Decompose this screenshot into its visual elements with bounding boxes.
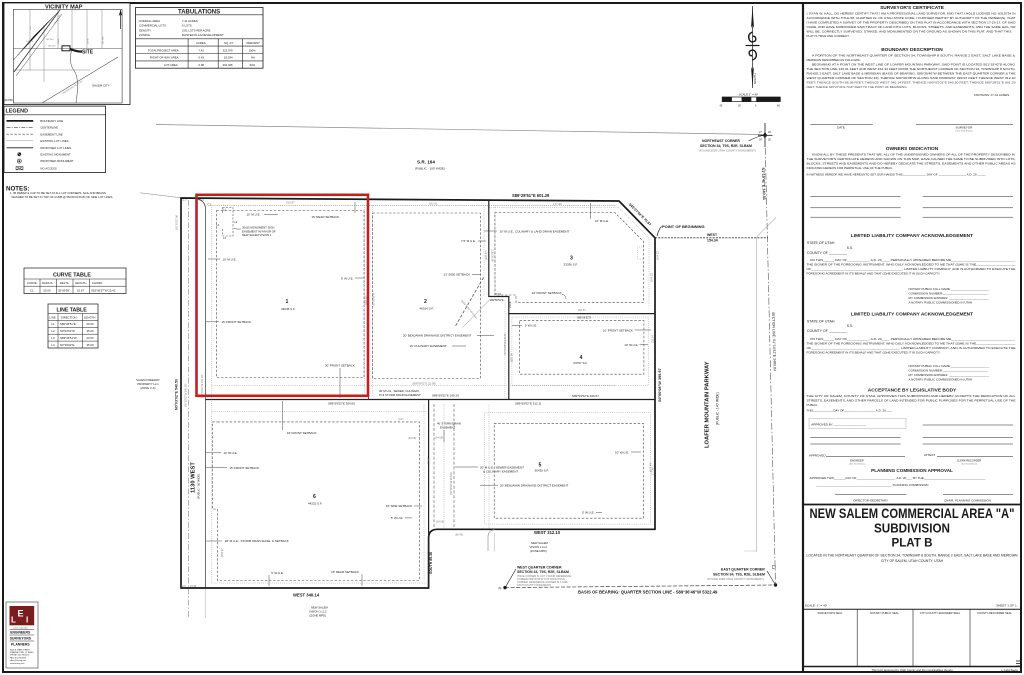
svg-text:(ZONE MPD): (ZONE MPD) <box>530 549 547 553</box>
svg-text:27.42: 27.42 <box>428 457 431 464</box>
svg-text:WEST: WEST <box>707 233 718 237</box>
svg-text:NEW SALEM COMMERCIAL AREA "A": NEW SALEM COMMERCIAL AREA "A" <box>810 506 1015 521</box>
svg-text:LINE TABLE: LINE TABLE <box>57 307 88 313</box>
svg-text:LIMITED LIABILITY COMPANY ACKN: LIMITED LIABILITY COMPANY ACKNOWLEDGEMEN… <box>851 312 973 318</box>
svg-text:FOREGOING AGREEMENT IN ITS BEH: FOREGOING AGREEMENT IN ITS BEHALF AND TH… <box>807 272 941 276</box>
svg-text:PI & STORM DRAIN EASEMENT: PI & STORM DRAIN EASEMENT <box>379 393 421 397</box>
svg-text:L: L <box>11 616 16 625</box>
svg-text:(S0°00'08"W 113.81): (S0°00'08"W 113.81) <box>450 472 453 495</box>
svg-text:PLAT B: PLAT B <box>892 535 933 549</box>
svg-text:SURVEYOR: SURVEYOR <box>956 125 974 129</box>
svg-text:EASEMENT: EASEMENT <box>440 426 456 430</box>
svg-text:15' FRONT SETBACK: 15' FRONT SETBACK <box>221 320 251 324</box>
svg-text:ACRES: ACRES <box>196 41 206 45</box>
svg-text:S.R. 164: S.R. 164 <box>417 160 435 165</box>
svg-text:S0°00'08"W: S0°00'08"W <box>373 292 376 306</box>
svg-text:(ZONE MPD): (ZONE MPD) <box>310 614 327 618</box>
svg-text:15' SIDE SETBACK: 15' SIDE SETBACK <box>386 504 413 508</box>
svg-text:(158.97): (158.97) <box>221 548 224 557</box>
svg-text:10' FRONT SETBACK: 10' FRONT SETBACK <box>532 291 562 295</box>
svg-text:office@lei-eng.com: office@lei-eng.com <box>10 660 27 662</box>
svg-text:LIMITED LIABILITY COMPANY ACKN: LIMITED LIABILITY COMPANY ACKNOWLEDGEMEN… <box>851 233 973 239</box>
svg-text:WEST 312.10: WEST 312.10 <box>534 530 561 535</box>
svg-text:L2: L2 <box>52 329 56 333</box>
svg-text:ACCORDANCE WITH TITLE 58, CHAP: ACCORDANCE WITH TITLE 58, CHAPTER 22, OF… <box>807 16 1016 20</box>
svg-text:BOUNDARY LINE: BOUNDARY LINE <box>40 119 63 123</box>
svg-text:23.98: 23.98 <box>190 585 197 588</box>
svg-text:ENGINEERS: ENGINEERS <box>10 630 31 634</box>
svg-text:LOAFER MOUNTAIN PARKWAY: LOAFER MOUNTAIN PARKWAY <box>705 361 711 448</box>
svg-text:S0°03'02"W: S0°03'02"W <box>60 329 75 333</box>
svg-text:100%: 100% <box>249 48 257 52</box>
svg-text:10' FRONT SETBACK: 10' FRONT SETBACK <box>603 328 633 332</box>
svg-text:PUBLIC.: PUBLIC. <box>807 403 819 407</box>
svg-text:INDICATED HEREON FOR PERPETUAL: INDICATED HEREON FOR PERPETUAL USE OF TH… <box>807 166 894 170</box>
svg-text:A NOTARY PUBLIC COMMISSIONED I: A NOTARY PUBLIC COMMISSIONED IN UTAH <box>909 301 973 305</box>
svg-text:COMMISSION NUMBER:____________: COMMISSION NUMBER:______________________… <box>909 292 989 296</box>
svg-text:CHAIR, PLANNING COMMISSION: CHAIR, PLANNING COMMISSION <box>944 499 991 503</box>
svg-text:S89°59'52"E 304.00: S89°59'52"E 304.00 <box>328 402 355 406</box>
svg-text:EXISTING MONUMENT: EXISTING MONUMENT <box>40 152 71 156</box>
svg-text:C1: C1 <box>208 203 212 207</box>
svg-text:SITE: SITE <box>82 50 94 56</box>
svg-text:CHORD: CHORD <box>92 281 102 285</box>
svg-text:BLOCKS, STREETS AND EASEMENTS: BLOCKS, STREETS AND EASEMENTS AND DO HER… <box>807 162 1016 166</box>
svg-text:N0°00'08"E: N0°00'08"E <box>492 249 495 262</box>
svg-text:26' M.U.E., STORM DRAIN EASE.: 26' M.U.E., STORM DRAIN EASE. & SETBACK <box>225 539 289 543</box>
svg-text:SCALE: 1" = 40': SCALE: 1" = 40' <box>805 604 828 608</box>
svg-text:PROPOSED MONUMENT: PROPOSED MONUMENT <box>40 159 73 163</box>
svg-text:______________________________: ________________________________________… <box>815 483 929 487</box>
svg-text:NOTARY PUBLIC FULL NAME:______: NOTARY PUBLIC FULL NAME:________________… <box>909 364 990 368</box>
svg-text:COUNTY-RECORDER SEAL: COUNTY-RECORDER SEAL <box>977 611 1012 615</box>
svg-text:S.S.: S.S. <box>847 246 853 250</box>
svg-text:15' FRONT SETBACK: 15' FRONT SETBACK <box>229 466 259 470</box>
svg-text:DIRECTION: DIRECTION <box>61 315 76 319</box>
svg-text:12.5': 12.5' <box>182 199 188 202</box>
svg-text:264.67: 264.67 <box>578 309 586 312</box>
svg-text:10' M.U.E.: 10' M.U.E. <box>223 257 237 261</box>
svg-text:EAST QUARTER CORNER: EAST QUARTER CORNER <box>721 568 765 572</box>
svg-text:10' M.U.E.: 10' M.U.E. <box>595 219 609 223</box>
svg-text:(25'): (25') <box>199 199 204 202</box>
svg-text:(PUBLIC - 140' WIDE): (PUBLIC - 140' WIDE) <box>716 392 720 425</box>
svg-text:BEGINNING AT A POINT ON THE WE: BEGINNING AT A POINT ON THE WEST LINE OF… <box>812 63 1016 67</box>
svg-text:LEGEND: LEGEND <box>6 109 29 115</box>
svg-text:NORTH: NORTH <box>753 73 757 84</box>
svg-text:MERIDIAN DESCRIBED AS FOLLOWS:: MERIDIAN DESCRIBED AS FOLLOWS: <box>807 58 861 62</box>
svg-text:0.81 LOTS PER ACRE: 0.81 LOTS PER ACRE <box>182 28 211 32</box>
svg-text:I, RYAN W. HALL, DO HEREBY CER: I, RYAN W. HALL, DO HEREBY CERTIFY THAT … <box>807 12 1016 16</box>
svg-text:This form approved by Utah Cou: This form approved by Utah County and th… <box>871 668 953 672</box>
svg-text:L/ 1410-76x01: L/ 1410-76x01 <box>1001 669 1018 673</box>
svg-text:EASEMENT LINE: EASEMENT LINE <box>40 132 62 136</box>
svg-text:SECTION 34, T9S, R2E, SLB&M: SECTION 34, T9S, R2E, SLB&M <box>700 144 752 148</box>
svg-text:7.5' M.U.E.: 7.5' M.U.E. <box>461 239 476 243</box>
svg-text:STATE OF UTAH: STATE OF UTAH <box>807 241 835 245</box>
svg-text:(26.28): (26.28) <box>408 437 416 440</box>
svg-text:(S0°03'02"W 540.50): (S0°03'02"W 540.50) <box>185 383 188 407</box>
svg-text:S89°59'52"E 169.29: S89°59'52"E 169.29 <box>432 393 459 397</box>
svg-text:SURVEYOR'S CERTIFICATE: SURVEYOR'S CERTIFICATE <box>880 5 945 11</box>
svg-text:1130 WEST: 1130 WEST <box>191 462 197 493</box>
svg-text:WASHER TO BE SET IN TOP OF CUR: WASHER TO BE SET IN TOP OF CURB @ PRODUC… <box>12 195 114 199</box>
svg-text:CITY OF SALEM, UTAH COUNTY, UT: CITY OF SALEM, UTAH COUNTY, UTAH <box>881 559 944 563</box>
svg-text:23797 S.F.: 23797 S.F. <box>573 361 588 365</box>
svg-text:THE CITY OF SALEM, COUNTY OF: THE CITY OF SALEM, COUNTY OF UTAH, APPRO… <box>807 394 1016 398</box>
svg-text:15' REAR SETBACK: 15' REAR SETBACK <box>331 570 359 574</box>
svg-text:20' BENJAMIN DRAINAGE DISTRICT: 20' BENJAMIN DRAINAGE DISTRICT EASEMENT <box>500 484 569 488</box>
svg-text:NOTARY PUBLIC FULL NAME:______: NOTARY PUBLIC FULL NAME:________________… <box>909 287 990 291</box>
svg-text:WEST QUARTER CORNER OF SECTION: WEST QUARTER CORNER OF SECTION 34); THEN… <box>807 76 1016 80</box>
svg-text:S0°00'08"W 399.97: S0°00'08"W 399.97 <box>658 368 662 402</box>
svg-text:THE SIGNER OF THE FOREGOING IN: THE SIGNER OF THE FOREGOING INSTRUMENT, … <box>807 342 1016 346</box>
svg-text:NO ACCESS: NO ACCESS <box>40 166 56 170</box>
svg-text:THE SECTION LINE 140.01 FEET A: THE SECTION LINE 140.01 FEET AND WEST 15… <box>807 67 1016 71</box>
svg-text:43045 S.F.: 43045 S.F. <box>281 307 296 311</box>
svg-text:STATE OF UTAH: STATE OF UTAH <box>807 320 835 324</box>
svg-text:PLAT IS TRUE AND CORRECT.: PLAT IS TRUE AND CORRECT. <box>807 34 850 38</box>
svg-text:THIS____________DAY OF________: THIS____________DAY OF__________________… <box>807 409 893 413</box>
svg-text:(S89°59'52"E 111.88): (S89°59'52"E 111.88) <box>412 383 436 386</box>
svg-text:3302 N. MAIN STREET: 3302 N. MAIN STREET <box>10 648 31 651</box>
svg-text:21.08: 21.08 <box>509 301 512 308</box>
svg-text:(PUBLIC - 100' WIDE): (PUBLIC - 100' WIDE) <box>415 167 445 171</box>
svg-text:SCALE 1" = 40': SCALE 1" = 40' <box>739 92 759 96</box>
svg-text:EXISTING LOT LINES: EXISTING LOT LINES <box>40 139 68 143</box>
svg-text:S89°59'52"E 312.11: S89°59'52"E 312.11 <box>515 402 542 406</box>
svg-text:(132.17): (132.17) <box>485 251 488 260</box>
svg-text:I HAVE COMPLETED A SURVEY OF T: I HAVE COMPLETED A SURVEY OF THE PROPERT… <box>807 21 1017 25</box>
svg-text:154.34: 154.34 <box>707 239 718 243</box>
svg-text:COMMERCIAL LOTS: COMMERCIAL LOTS <box>139 24 166 28</box>
svg-text:94%: 94% <box>250 63 256 67</box>
svg-text:A NOTARY PUBLIC COMMISSIONED I: A NOTARY PUBLIC COMMISSIONED IN UTAH <box>909 378 973 382</box>
svg-text:CLERK-RECORDER: CLERK-RECORDER <box>957 459 981 463</box>
svg-text:(FOUND 1998 UTAH COUNTY MONUME: (FOUND 1998 UTAH COUNTY MONUMENT) <box>707 577 764 581</box>
svg-text:APPROVED BY___________________: APPROVED BY____________________ <box>811 423 866 427</box>
svg-text:(PUBLIC - 56' WIDE): (PUBLIC - 56' WIDE) <box>197 474 201 499</box>
svg-text:SQ. FT.: SQ. FT. <box>224 41 234 45</box>
svg-text:A PORTION OF THE NORTHEAST QUA: A PORTION OF THE NORTHEAST QUARTER OF SE… <box>812 54 1015 58</box>
svg-text:POINT OF BEGINNING: POINT OF BEGINNING <box>662 224 705 229</box>
svg-text:DATE: DATE <box>837 125 845 129</box>
svg-text:TOTAL PROJECT AREA: TOTAL PROJECT AREA <box>148 48 179 52</box>
svg-text:(34.08): (34.08) <box>436 521 444 524</box>
svg-text:322,979: 322,979 <box>223 48 234 52</box>
svg-text:1000 N: 1000 N <box>26 41 33 43</box>
svg-text:C1: C1 <box>30 288 34 292</box>
svg-text:233.97: 233.97 <box>286 200 295 204</box>
svg-text:COUNTY OF _________: COUNTY OF _________ <box>807 251 848 255</box>
svg-text:STREETS, EASEMENTS, AND OTHER: STREETS, EASEMENTS, AND OTHER PARCELS OF… <box>807 399 1016 403</box>
svg-text:177.49: 177.49 <box>553 202 562 206</box>
svg-text:COMMISSION NUMBER:____________: COMMISSION NUMBER:______________________… <box>909 369 989 373</box>
svg-text:(S): (S) <box>498 587 502 590</box>
svg-text:46014 S.F.: 46014 S.F. <box>420 307 435 311</box>
svg-text:SUBDIVISION: SUBDIVISION <box>874 521 950 536</box>
svg-text:KNOW ALL BY THESE PRESENTS THA: KNOW ALL BY THESE PRESENTS THAT WE, ALL … <box>812 153 1015 157</box>
svg-text:a Utah corporation: a Utah corporation <box>13 626 28 629</box>
svg-text:FAX: 801.798.9393: FAX: 801.798.9393 <box>10 656 26 659</box>
svg-text:UTAH COUNTY MONUMENT): UTAH COUNTY MONUMENT) <box>517 584 551 587</box>
svg-text:3: 3 <box>570 256 573 262</box>
svg-text:WEST 340.14: WEST 340.14 <box>293 593 320 598</box>
svg-text:35.00: 35.00 <box>87 329 94 333</box>
svg-text:15.67: 15.67 <box>77 288 84 292</box>
svg-text:ENGINEER: ENGINEER <box>850 459 864 463</box>
svg-text:192.61: 192.61 <box>429 202 438 206</box>
svg-text:5' W.U.E.: 5' W.U.E. <box>391 516 404 520</box>
svg-text:SPANISH FORK, UT 84660: SPANISH FORK, UT 84660 <box>10 651 33 654</box>
svg-text:WILL BE, CORRECTLY SURVEYED, S: WILL BE, CORRECTLY SURVEYED, STAKED, AND… <box>807 30 1012 34</box>
svg-text:ON THIS______ DAY OF__________: ON THIS______ DAY OF____________, A.D. 2… <box>810 258 1015 262</box>
svg-text:1: 1 <box>286 299 289 305</box>
svg-text:APPROVED THIS_______DAY OF____: APPROVED THIS_______DAY OF______________… <box>810 476 986 480</box>
svg-text:10' W.U.E.: 10' W.U.E. <box>624 343 638 347</box>
svg-text:44222 S.F.: 44222 S.F. <box>308 502 323 506</box>
svg-text:I: I <box>26 616 28 625</box>
svg-text:SURVEYOR'S SEAL: SURVEYOR'S SEAL <box>818 611 843 615</box>
svg-text:(See Seal Below): (See Seal Below) <box>961 463 977 465</box>
svg-text:IN WITNESS HEREOF WE HAVE HERE: IN WITNESS HEREOF WE HAVE HEREUNTO SET O… <box>807 172 987 176</box>
svg-text:MAIN: MAIN <box>57 38 60 44</box>
svg-text:CITY-COUNTY ENGINEER SEAL: CITY-COUNTY ENGINEER SEAL <box>920 611 961 615</box>
svg-text:SURVEYORS: SURVEYORS <box>10 637 32 641</box>
svg-text:20.00: 20.00 <box>87 336 94 340</box>
svg-text:10' W.U.E.: 10' W.U.E. <box>615 450 629 454</box>
svg-text:20' BENJAMIN DRAINAGE DISTRICT: 20' BENJAMIN DRAINAGE DISTRICT EASEMENT <box>403 334 472 338</box>
svg-text:35.00: 35.00 <box>87 343 94 347</box>
svg-text:(See Seal Below): (See Seal Below) <box>849 463 865 465</box>
svg-text:RIGHT-OF-WAY AREA: RIGHT-OF-WAY AREA <box>150 56 179 60</box>
svg-text:S89°59'52"E: S89°59'52"E <box>577 316 591 319</box>
svg-text:10' M.U.E., CULINARY & LAND DR: 10' M.U.E., CULINARY & LAND DRAIN EASEME… <box>500 229 570 233</box>
svg-text:N0°03'02"E: N0°03'02"E <box>60 343 74 347</box>
svg-text:APPROVED: APPROVED <box>809 454 827 458</box>
svg-text:(See Seal Below): (See Seal Below) <box>956 130 973 132</box>
svg-text:S89°28'51"E 601.29: S89°28'51"E 601.29 <box>512 193 550 198</box>
svg-text:(34.08): (34.08) <box>435 437 443 440</box>
svg-text:25.00: 25.00 <box>44 288 51 292</box>
svg-text:CURVE TABLE: CURVE TABLE <box>53 273 91 279</box>
svg-text:S18°06'57"W 15.42: S18°06'57"W 15.42 <box>91 288 116 292</box>
svg-text:5' W.U.E.: 5' W.U.E. <box>525 324 538 328</box>
svg-text:SALEM CITY: SALEM CITY <box>92 84 110 88</box>
svg-text:(S0°03'02"W): (S0°03'02"W) <box>176 215 179 230</box>
svg-text:LOT AREA: LOT AREA <box>164 63 178 67</box>
svg-text:DIRECTOR-SECRETARY: DIRECTOR-SECRETARY <box>853 499 888 503</box>
svg-text:SR-164: SR-164 <box>48 46 56 48</box>
svg-text:ACCEPTANCE BY LEGISLATIVE BODY: ACCEPTANCE BY LEGISLATIVE BODY <box>868 388 957 394</box>
svg-text:PLANNERS: PLANNERS <box>11 643 30 647</box>
svg-text:400 E: 400 E <box>88 38 90 44</box>
svg-text:NORTHEAST CORNER: NORTHEAST CORNER <box>702 139 740 143</box>
svg-text:THE SIGNER OF THE FOREGOING IN: THE SIGNER OF THE FOREGOING INSTRUMENT, … <box>807 263 1016 267</box>
svg-text:27.34: 27.34 <box>495 293 502 296</box>
svg-text:THE SURVEYOR'S CERTIFICATE HER: THE SURVEYOR'S CERTIFICATE HEREON AND SH… <box>807 157 1016 161</box>
svg-text:6.98: 6.98 <box>199 63 205 67</box>
svg-text:LENGTH: LENGTH <box>84 315 95 319</box>
svg-text:SR-164: SR-164 <box>46 39 54 41</box>
svg-text:20.00: 20.00 <box>87 322 94 326</box>
svg-text:RADIUS: RADIUS <box>42 281 53 285</box>
svg-text:10' W.U.E.: 10' W.U.E. <box>223 451 237 455</box>
svg-text:WEST QUARTER CORNER: WEST QUARTER CORNER <box>517 566 562 570</box>
svg-text:DENSITY: DENSITY <box>139 28 151 32</box>
svg-text:PLANNING COMMISSION APPROVAL: PLANNING COMMISSION APPROVAL <box>871 468 953 473</box>
svg-text:N89°28'51"W: N89°28'51"W <box>60 336 77 340</box>
svg-text:NEW SALEM VISION 1: NEW SALEM VISION 1 <box>242 233 272 237</box>
svg-text:L3: L3 <box>52 336 56 340</box>
svg-text:30435 S.F.: 30435 S.F. <box>535 469 550 473</box>
svg-text:E: E <box>18 609 24 619</box>
svg-text:COUNTY OF _________: COUNTY OF _________ <box>807 329 848 333</box>
svg-text:ATTEST: ATTEST <box>924 453 935 457</box>
svg-text:FEET; THENCE S45°27'44"E 70.87: FEET; THENCE S45°27'44"E 70.87 FEET TO T… <box>807 85 908 89</box>
svg-text:10' M.U.E.: 10' M.U.E. <box>247 213 261 217</box>
svg-text:35°50'59": 35°50'59" <box>58 288 70 292</box>
svg-text:& CULINARY EASEMENT: & CULINARY EASEMENT <box>483 469 518 473</box>
svg-text:CENTERLINE: CENTERLINE <box>40 126 58 130</box>
svg-text:LINE: LINE <box>50 315 56 319</box>
svg-text:18,934: 18,934 <box>224 56 233 60</box>
svg-text:(12'): (12') <box>181 585 186 588</box>
svg-text:ON THIS______ DAY OF__________: ON THIS______ DAY OF____________, A.D. 2… <box>810 337 1015 341</box>
svg-text:FEET; THENCE SOUTH 85.38 FEET;: FEET; THENCE SOUTH 85.38 FEET; THENCE WE… <box>807 81 1016 85</box>
svg-text:0.43: 0.43 <box>199 56 205 60</box>
svg-text:6: 6 <box>313 494 316 500</box>
svg-text:(104.22): (104.22) <box>651 273 654 282</box>
svg-text:(104.22): (104.22) <box>657 251 660 260</box>
svg-text:5' W.U.E.: 5' W.U.E. <box>271 571 284 575</box>
svg-text:OVERALL AREA: OVERALL AREA <box>139 19 160 23</box>
svg-text:(177.49): (177.49) <box>650 463 653 472</box>
svg-text:7.41 ACRES: 7.41 ACRES <box>182 19 198 23</box>
svg-text:FOREGOING AGREEMENT IN ITS BEH: FOREGOING AGREEMENT IN ITS BEHALF AND TH… <box>807 351 941 355</box>
svg-text:118.14: 118.14 <box>652 335 655 343</box>
svg-text:BOUNDARY DESCRIPTION: BOUNDARY DESCRIPTION <box>881 47 943 53</box>
svg-text:RANGE 2 EAST, SALT LAKE BASE &: RANGE 2 EAST, SALT LAKE BASE & MERIDIAN … <box>807 72 1016 76</box>
svg-text:MY COMMISSION EXPIRES: _______: MY COMMISSION EXPIRES: _________________… <box>909 373 990 377</box>
svg-text:S89°59'52"E 206.67: S89°59'52"E 206.67 <box>572 394 599 398</box>
svg-text:MY COMMISSION EXPIRES: _______: MY COMMISSION EXPIRES: _________________… <box>909 296 990 300</box>
svg-text:15' REAR SETBACK: 15' REAR SETBACK <box>312 215 340 219</box>
svg-text:MASTER PLAN DEVELOPMENT: MASTER PLAN DEVELOPMENT <box>182 33 224 37</box>
svg-text:PROPOSED LOT LINES: PROPOSED LOT LINES <box>40 146 71 150</box>
svg-text:SHEET 1 OF 1: SHEET 1 OF 1 <box>996 604 1017 608</box>
svg-text:S89°59'52"E: S89°59'52"E <box>490 299 504 302</box>
svg-text:(FOUND 2009 UTAH COUNTY MONUME: (FOUND 2009 UTAH COUNTY MONUMENT) <box>699 149 756 153</box>
svg-text:30' FRONT SETBACK: 30' FRONT SETBACK <box>325 363 355 367</box>
svg-text:(ZONE C-S): (ZONE C-S) <box>140 386 155 390</box>
svg-text:SECTION 34, T9S, R2E, SLB&M: SECTION 34, T9S, R2E, SLB&M <box>517 570 569 574</box>
svg-text:304,045: 304,045 <box>223 63 234 67</box>
svg-text:30-059: 30-059 <box>5 98 14 102</box>
svg-text:34' FRONT SETBACK: 34' FRONT SETBACK <box>287 431 317 435</box>
svg-text:ZONING: ZONING <box>139 33 150 37</box>
svg-text:NOTARY PUBLIC SEAL: NOTARY PUBLIC SEAL <box>870 611 899 615</box>
svg-text:CODE, AND HAVE SUBDIVIDED SAID: CODE, AND HAVE SUBDIVIDED SAID TRACT OF … <box>807 25 1017 29</box>
svg-text:2: 2 <box>424 299 427 305</box>
svg-text:S89°28'51"E: S89°28'51"E <box>60 322 76 326</box>
svg-text:7.41: 7.41 <box>199 48 205 52</box>
svg-text:L4: L4 <box>52 343 56 347</box>
svg-text:CURVE: CURVE <box>27 281 37 285</box>
svg-text:16' CULINARY EASEMENT: 16' CULINARY EASEMENT <box>410 344 447 348</box>
svg-text:SECTION 34, T9S, R2E, SLB&M: SECTION 34, T9S, R2E, SLB&M <box>713 573 765 577</box>
svg-text:6 LOTS: 6 LOTS <box>182 24 192 28</box>
svg-text:L1: L1 <box>52 322 56 326</box>
svg-text:S0°00'08"W 141.50: S0°00'08"W 141.50 <box>504 333 507 355</box>
svg-text:TABULATIONS: TABULATIONS <box>178 10 220 16</box>
svg-text:PHONE: 801.798.0555: PHONE: 801.798.0555 <box>10 655 29 657</box>
svg-text:www.lei-eng.com: www.lei-eng.com <box>10 663 25 665</box>
svg-text:(12'): (12') <box>398 418 403 421</box>
svg-text:SR-198: SR-198 <box>103 36 105 44</box>
svg-text:BASIS OF BEARING: QUARTER SECT: BASIS OF BEARING: QUARTER SECTION LINE -… <box>578 590 718 595</box>
svg-text:LENGTH: LENGTH <box>75 281 86 285</box>
svg-text:DELTA: DELTA <box>60 281 69 285</box>
svg-text:13' SIDE SETBACK: 13' SIDE SETBACK <box>444 273 471 277</box>
svg-text:5' W.U.E.: 5' W.U.E. <box>341 276 354 280</box>
svg-text:LOCATED IN THE NORTHEAST QUART: LOCATED IN THE NORTHEAST QUARTER OF SECT… <box>807 553 1019 557</box>
svg-text:OF____________________________: OF______________________________________… <box>807 346 1016 350</box>
svg-text:S.S.: S.S. <box>847 324 853 328</box>
svg-text:5' W.U.E.: 5' W.U.E. <box>582 511 595 515</box>
svg-text:OWNERS DEDICATION: OWNERS DEDICATION <box>886 146 939 152</box>
svg-text:OF____________________________: OF______________________________________… <box>807 267 1016 271</box>
svg-text:(S0°03'02"W 103.13): (S0°03'02"W 103.13) <box>201 374 204 398</box>
svg-text:CONTAINS: ±7.41 ACRES.: CONTAINS: ±7.41 ACRES. <box>974 93 1010 97</box>
svg-text:6%: 6% <box>251 56 256 60</box>
svg-text:N0°03'02"E 540.50: N0°03'02"E 540.50 <box>175 379 179 410</box>
svg-text:SOUTH 85.38: SOUTH 85.38 <box>429 552 433 574</box>
svg-text:(82.43): (82.43) <box>455 534 463 537</box>
svg-text:PERCENT: PERCENT <box>247 41 261 45</box>
svg-text:23336 S.F.: 23336 S.F. <box>564 263 579 267</box>
